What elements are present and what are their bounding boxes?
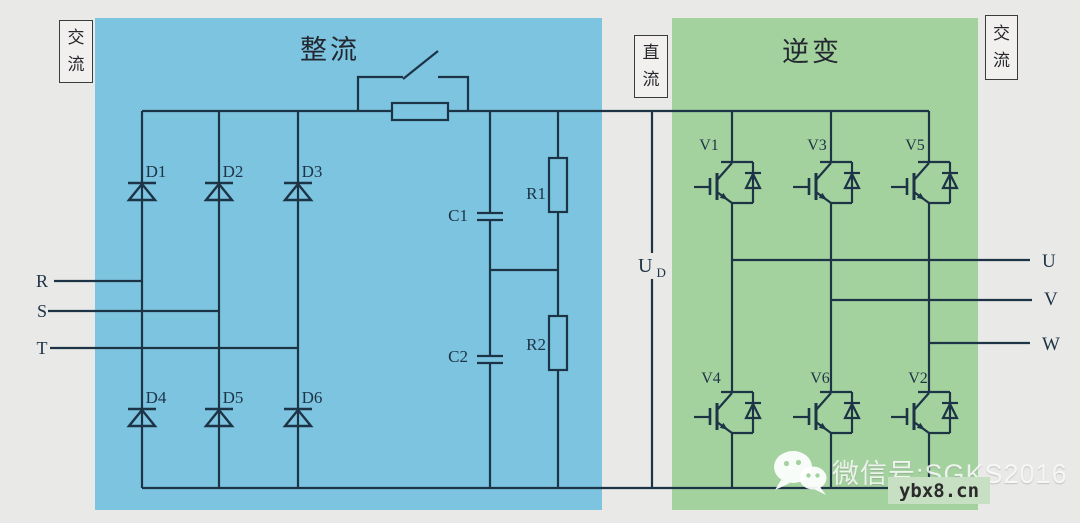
watermark-site-text: ybx8.cn bbox=[888, 477, 990, 504]
label-d4: D4 bbox=[146, 388, 167, 407]
label-c2: C2 bbox=[448, 347, 468, 366]
label-output-v: V bbox=[1044, 289, 1058, 310]
label-d3: D3 bbox=[302, 162, 323, 181]
ac-output-badge: 交 流 bbox=[985, 15, 1018, 80]
label-output-w: W bbox=[1042, 334, 1060, 355]
igbt-symbol-v4 bbox=[694, 392, 761, 433]
inverter-title: 逆变 bbox=[752, 30, 872, 69]
dc-link-badge: 直 流 bbox=[634, 35, 668, 98]
label-d2: D2 bbox=[223, 162, 244, 181]
label-d6: D6 bbox=[302, 388, 323, 407]
igbt-symbol-v5 bbox=[891, 162, 958, 203]
ac-input-badge: 交 流 bbox=[59, 20, 93, 83]
igbt-symbol-v3 bbox=[793, 162, 860, 203]
label-v2: V2 bbox=[908, 370, 928, 387]
wechat-icon bbox=[770, 448, 832, 500]
igbt-symbol-v2 bbox=[891, 392, 958, 433]
label-d5: D5 bbox=[223, 388, 244, 407]
rectifier-title: 整流 bbox=[270, 28, 390, 67]
label-input-r: R bbox=[36, 271, 48, 291]
label-input-t: T bbox=[37, 338, 48, 358]
circuit-schematic: D1 D2 D3 D4 D5 D6 C1 C2 R1 R2 R S T U V … bbox=[0, 0, 1080, 523]
label-input-s: S bbox=[37, 301, 47, 321]
resistor-r1 bbox=[549, 158, 567, 212]
dc-voltage-base: U bbox=[638, 255, 653, 277]
circuit-wires bbox=[48, 51, 1032, 488]
label-v4: V4 bbox=[701, 370, 721, 387]
dc-voltage-subscript: D bbox=[656, 265, 665, 280]
label-d1: D1 bbox=[146, 162, 167, 181]
label-c1: C1 bbox=[448, 206, 468, 225]
igbt-symbol-v1 bbox=[694, 162, 761, 203]
precharge-resistor bbox=[392, 103, 448, 120]
label-r1: R1 bbox=[526, 184, 546, 203]
resistor-r2 bbox=[549, 316, 567, 370]
label-output-u: U bbox=[1042, 251, 1056, 272]
vfd-circuit-diagram: D1 D2 D3 D4 D5 D6 C1 C2 R1 R2 R S T U V … bbox=[0, 0, 1080, 523]
label-r2: R2 bbox=[526, 335, 546, 354]
label-v6: V6 bbox=[810, 370, 830, 387]
label-v5: V5 bbox=[905, 137, 925, 154]
igbt-symbol-v6 bbox=[793, 392, 860, 433]
label-v3: V3 bbox=[807, 137, 827, 154]
label-v1: V1 bbox=[699, 137, 719, 154]
bypass-switch-blade bbox=[403, 51, 438, 79]
